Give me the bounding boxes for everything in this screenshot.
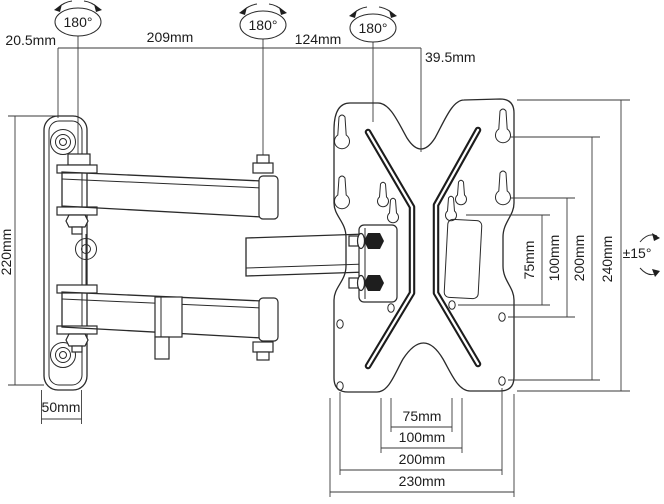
dim-arm1-length: 209mm <box>147 29 194 45</box>
dim-vesa75-horizontal: 75mm <box>403 408 442 424</box>
dim-vesa200-vertical: 200mm <box>571 235 587 282</box>
dim-plate-width: 230mm <box>399 473 446 489</box>
dim-vesa75-vertical: 75mm <box>521 241 537 280</box>
rotation-arrow-icon <box>349 7 397 18</box>
dim-wallplate-width: 50mm <box>42 399 81 415</box>
extension-link <box>246 234 366 276</box>
vesa-plate <box>334 99 514 392</box>
wall-screw-top <box>51 130 76 155</box>
upper-hinge-stack <box>57 154 97 234</box>
bottom-dimension-group: 75mm 100mm 200mm 230mm <box>330 388 514 497</box>
round-holes <box>337 301 505 391</box>
hinge-rod-washer <box>76 234 97 286</box>
vesa-slot-right <box>436 130 478 364</box>
tilt-annotation: ±15° <box>623 233 660 277</box>
cable-clip <box>155 297 182 359</box>
lower-hinge-stack <box>57 285 97 352</box>
keyhole-slots <box>334 109 510 223</box>
tilt-label: ±15° <box>623 245 652 261</box>
plate-recess <box>444 219 482 299</box>
dim-wallplate-height: 220mm <box>0 229 14 276</box>
rotation-label-hinge3: 180° <box>359 20 388 36</box>
dim-vesa200-horizontal: 200mm <box>399 451 446 467</box>
dim-wall-offset: 20.5mm <box>5 32 56 48</box>
rotation-arrow-icon <box>54 1 102 12</box>
dim-vesa100-horizontal: 100mm <box>399 429 446 445</box>
mount-dimension-diagram: 20.5mm 209mm 124mm 39.5mm 180° 180° 180° <box>0 0 664 504</box>
dim-plate-height: 240mm <box>599 236 615 283</box>
pivot-bracket <box>349 225 397 302</box>
rotation-badge-hinge1: 180° <box>54 1 102 36</box>
rotation-label-hinge1: 180° <box>64 14 93 30</box>
wall-plate <box>44 116 97 390</box>
rotation-badge-hinge3: 180° <box>349 7 397 42</box>
top-dimension-chain: 20.5mm 209mm 124mm 39.5mm <box>5 29 475 156</box>
wall-mount-drawing: 20.5mm 209mm 124mm 39.5mm 180° 180° 180° <box>0 0 664 504</box>
right-dimension-group: 75mm 100mm 200mm 240mm ±15° <box>458 100 660 391</box>
dim-vesa100-vertical: 100mm <box>546 235 562 282</box>
dim-plate-offset: 39.5mm <box>425 49 476 65</box>
rotation-badge-hinge2: 180° <box>239 4 287 39</box>
rotation-arrow-icon <box>239 4 287 15</box>
dim-arm2-length: 124mm <box>295 31 342 47</box>
rotation-label-hinge2: 180° <box>249 17 278 33</box>
